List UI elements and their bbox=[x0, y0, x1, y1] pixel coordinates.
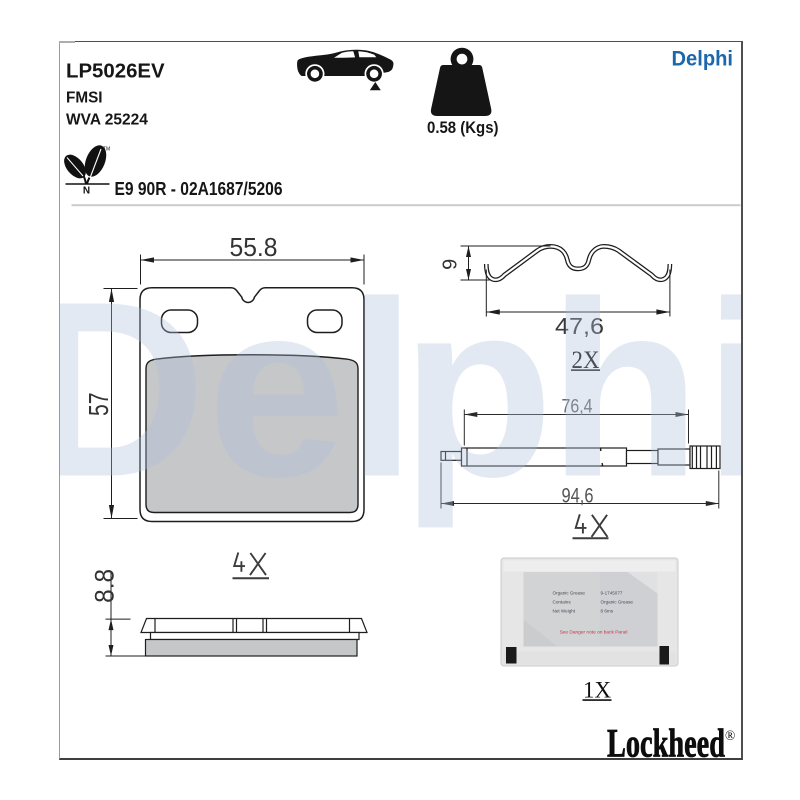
svg-text:E9 90R - 02A1687/5206: E9 90R - 02A1687/5206 bbox=[115, 179, 283, 199]
svg-text:®: ® bbox=[725, 728, 735, 743]
svg-text:Delphi: Delphi bbox=[672, 46, 734, 71]
svg-text:0.58 (Kgs): 0.58 (Kgs) bbox=[427, 119, 499, 137]
svg-text:8.8: 8.8 bbox=[90, 569, 120, 603]
svg-text:TM: TM bbox=[103, 147, 110, 153]
svg-text:8 6ms: 8 6ms bbox=[601, 609, 614, 614]
svg-text:1X: 1X bbox=[583, 678, 612, 703]
svg-text:WVA 25224: WVA 25224 bbox=[66, 112, 148, 129]
svg-text:Delphi: Delphi bbox=[60, 250, 741, 529]
svg-text:Organic Grease: Organic Grease bbox=[553, 591, 586, 596]
svg-text:FMSI: FMSI bbox=[66, 90, 103, 107]
svg-text:See Danger note on back Panel: See Danger note on back Panel bbox=[559, 630, 627, 636]
svg-text:Organic Grease: Organic Grease bbox=[601, 600, 634, 605]
svg-text:Lockheed: Lockheed bbox=[607, 721, 725, 759]
svg-text:LP5026EV: LP5026EV bbox=[66, 61, 165, 83]
svg-text:N: N bbox=[83, 185, 90, 196]
svg-text:Net Weight: Net Weight bbox=[553, 609, 576, 614]
svg-text:9-1745077: 9-1745077 bbox=[601, 591, 623, 596]
svg-text:Contains: Contains bbox=[553, 600, 572, 605]
